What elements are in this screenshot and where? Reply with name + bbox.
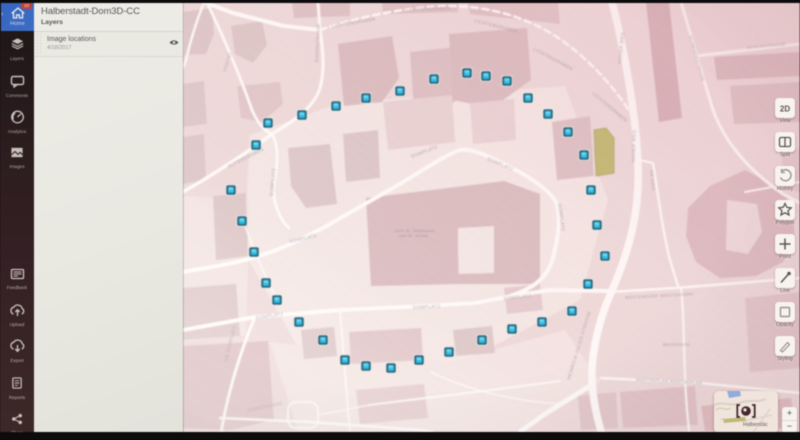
svg-text:2D: 2D [780,105,790,114]
